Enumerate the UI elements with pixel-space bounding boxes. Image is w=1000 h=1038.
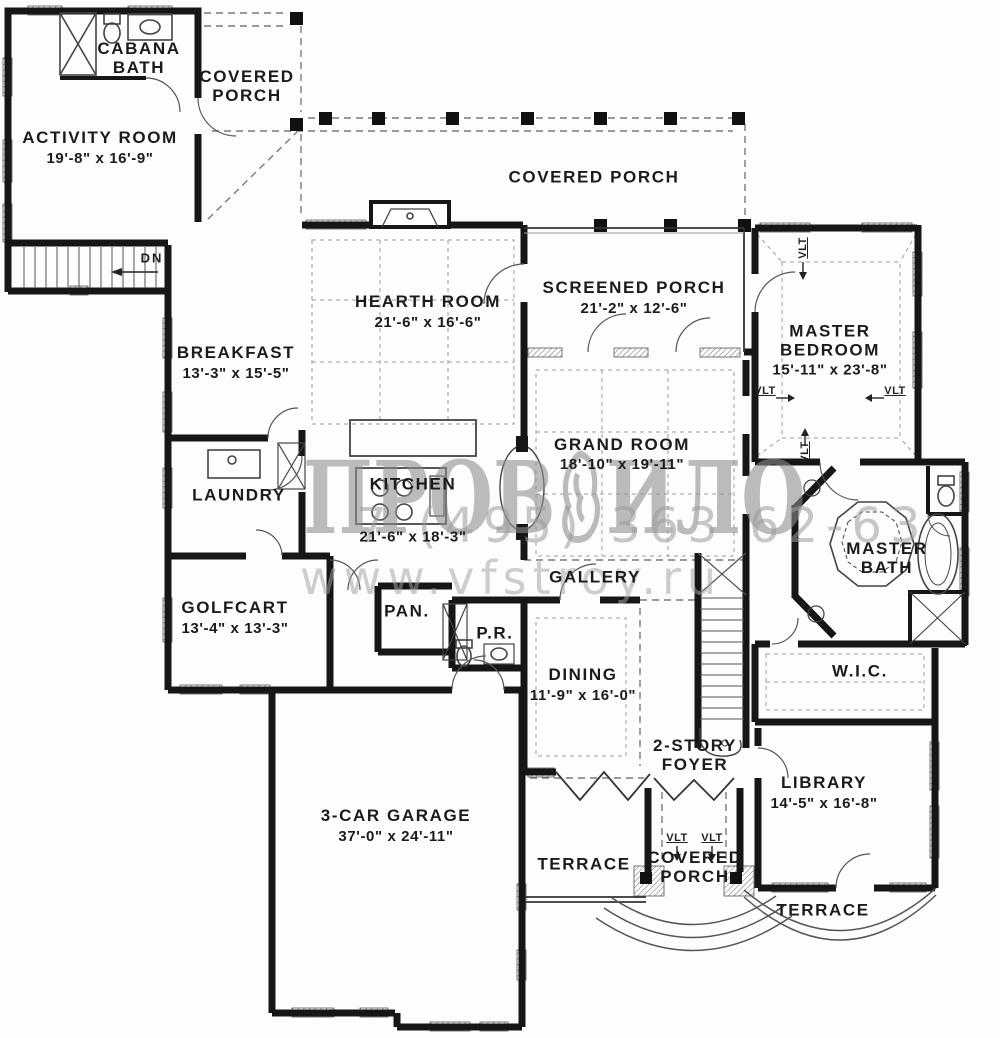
sink-icon-masterbath <box>804 480 824 622</box>
label-breakfast: BREAKFAST 13'-3" x 15'-5" <box>177 342 295 384</box>
label-activity-room: ACTIVITY ROOM 19'-8" x 16'-9" <box>22 127 178 169</box>
label-vlt-porch-left: VLT <box>666 832 687 844</box>
label-master-bedroom: MASTER BEDROOM 15'-11" x 23'-8" <box>772 322 887 381</box>
label-wic: W.I.C. <box>832 661 888 682</box>
label-powder-room: P.R. <box>476 623 513 644</box>
label-terrace-left: TERRACE <box>537 854 630 875</box>
sink-icon-laundry <box>208 450 260 478</box>
label-covered-porch-top: COVERED PORCH <box>509 167 680 188</box>
label-cabana-bath: CABANA BATH <box>97 39 180 77</box>
toilet-icon-master <box>938 476 954 506</box>
label-laundry: LAUNDRY <box>192 485 286 506</box>
label-screened-porch: SCREENED PORCH 21'-2" x 12'-6" <box>543 277 726 319</box>
sink-icon-cabana <box>128 14 172 40</box>
sink-icon-pr <box>484 644 514 664</box>
label-vlt-master-top: VLT <box>797 237 809 258</box>
label-kitchen: KITCHEN <box>370 474 457 495</box>
label-golfcart: GOLFCART 13'-4" x 13'-3" <box>181 597 288 639</box>
shower-icon-cabana <box>60 13 96 75</box>
label-covered-porch-south: COVERED PORCH <box>647 848 742 886</box>
label-garage: 3-CAR GARAGE 37'-0" x 24'-11" <box>321 805 472 847</box>
label-terrace-se: TERRACE <box>776 900 869 921</box>
label-vlt-master-left: VLT <box>754 385 775 397</box>
floor-plan-page: ПРОВ ИЛО 7 (495) 363 62-63 www.vfstroy.r… <box>0 0 1000 1038</box>
label-library: LIBRARY 14'-5" x 16'-8" <box>770 772 877 814</box>
label-pantry: PAN. <box>384 601 430 622</box>
label-kitchen-dims: 21'-6" x 18'-3" <box>359 527 466 548</box>
label-vlt-master-bottom: VLT <box>799 441 811 462</box>
door-arcs <box>146 78 950 888</box>
label-foyer: 2-STORY FOYER <box>653 736 737 774</box>
dn-arrowhead <box>111 268 122 276</box>
stairs-icon-dn <box>24 247 156 288</box>
label-dn: DN <box>141 251 164 266</box>
label-vlt-porch-right: VLT <box>701 832 722 844</box>
fireplace-icon-grand <box>500 436 544 540</box>
label-vlt-master-right: VLT <box>884 385 905 397</box>
fireplace-icon <box>371 202 449 227</box>
label-gallery: GALLERY <box>549 567 641 588</box>
label-hearth-room: HEARTH ROOM 21'-6" x 16'-6" <box>355 291 501 333</box>
shower-x-master <box>910 592 965 644</box>
label-covered-porch-nw: COVERED PORCH <box>199 67 294 105</box>
stairs-icon-main <box>698 553 746 756</box>
kitchen-island <box>350 420 476 524</box>
label-master-bath: MASTER BATH <box>846 539 927 577</box>
label-grand-room: GRAND ROOM 18'-10" x 19'-11" <box>554 435 690 475</box>
label-dining: DINING 11'-9" x 16'-0" <box>530 664 636 706</box>
